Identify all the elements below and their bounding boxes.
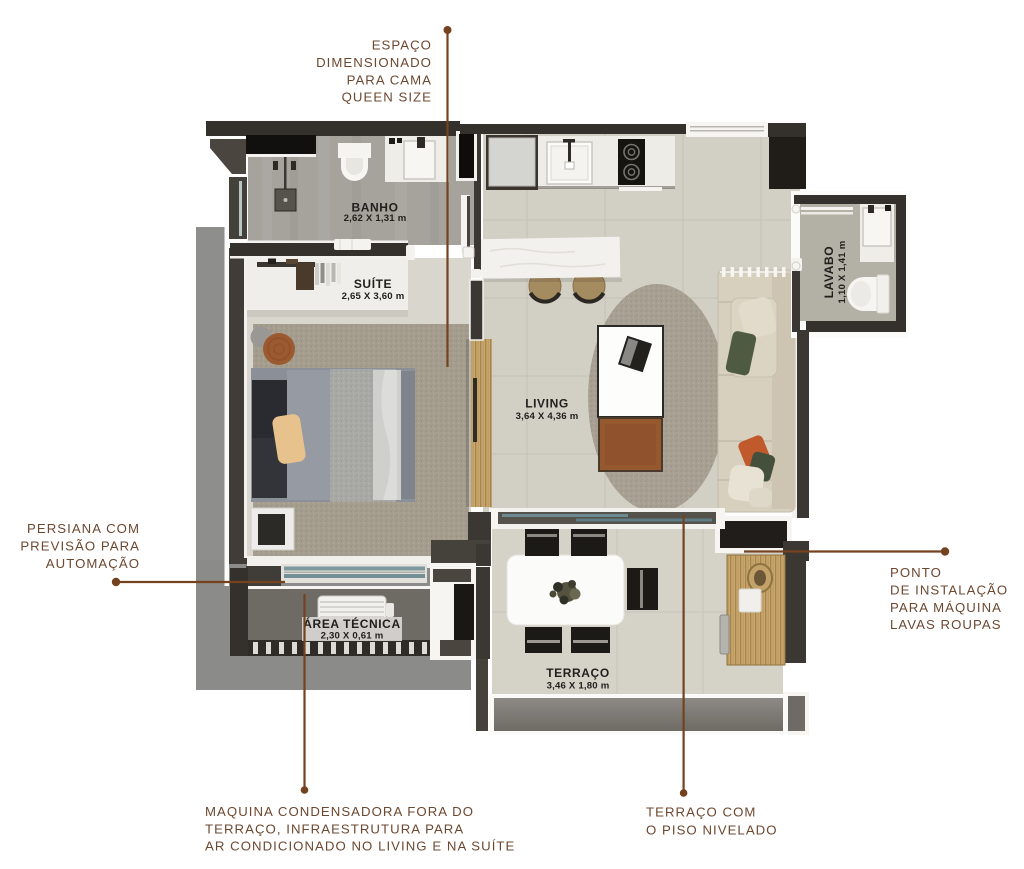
svg-text:TERRAÇO COM: TERRAÇO COM (646, 805, 756, 820)
svg-text:PERSIANA COM: PERSIANA COM (27, 521, 140, 536)
svg-text:PARA CAMA: PARA CAMA (347, 73, 432, 88)
svg-text:QUEEN SIZE: QUEEN SIZE (342, 90, 432, 105)
svg-text:SUÍTE: SUÍTE (354, 276, 392, 291)
svg-text:AR CONDICIONADO NO LIVING E NA: AR CONDICIONADO NO LIVING E NA SUÍTE (205, 839, 515, 854)
svg-text:MAQUINA CONDENSADORA FORA DO: MAQUINA CONDENSADORA FORA DO (205, 804, 474, 819)
svg-text:1,10 X 1,41 m: 1,10 X 1,41 m (837, 241, 848, 304)
svg-text:2,30 X 0,61 m: 2,30 X 0,61 m (321, 631, 384, 642)
svg-text:3,64 X 4,36 m: 3,64 X 4,36 m (516, 411, 579, 422)
svg-text:ÁREA TÉCNICA: ÁREA TÉCNICA (303, 616, 400, 631)
svg-text:PARA MÁQUINA: PARA MÁQUINA (890, 600, 1002, 615)
svg-text:PREVISÃO PARA: PREVISÃO PARA (20, 539, 140, 554)
svg-text:LAVABO: LAVABO (822, 246, 836, 299)
svg-text:TERRAÇO: TERRAÇO (546, 666, 610, 680)
svg-text:2,65 X 3,60 m: 2,65 X 3,60 m (342, 291, 405, 302)
svg-text:ESPAÇO: ESPAÇO (372, 38, 432, 53)
svg-text:DE INSTALAÇÃO: DE INSTALAÇÃO (890, 583, 1008, 598)
svg-text:LIVING: LIVING (525, 397, 569, 411)
svg-text:PONTO: PONTO (890, 565, 942, 580)
svg-text:2,62 X 1,31 m: 2,62 X 1,31 m (344, 213, 407, 224)
svg-text:LAVAS ROUPAS: LAVAS ROUPAS (890, 617, 1002, 632)
svg-text:TERRAÇO, INFRAESTRUTURA PARA: TERRAÇO, INFRAESTRUTURA PARA (205, 822, 464, 837)
svg-text:DIMENSIONADO: DIMENSIONADO (316, 55, 432, 70)
svg-text:3,46 X 1,80 m: 3,46 X 1,80 m (547, 681, 610, 692)
svg-text:O PISO NIVELADO: O PISO NIVELADO (646, 823, 778, 838)
svg-text:AUTOMAÇÃO: AUTOMAÇÃO (46, 556, 140, 571)
